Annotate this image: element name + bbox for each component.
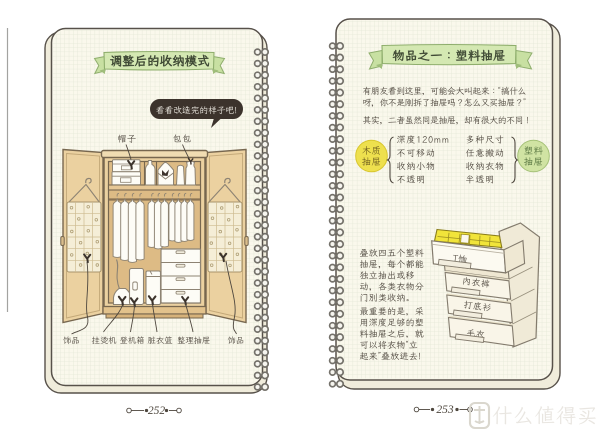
svg-text:253: 253 bbox=[436, 404, 454, 416]
svg-text:252: 252 bbox=[148, 405, 166, 417]
